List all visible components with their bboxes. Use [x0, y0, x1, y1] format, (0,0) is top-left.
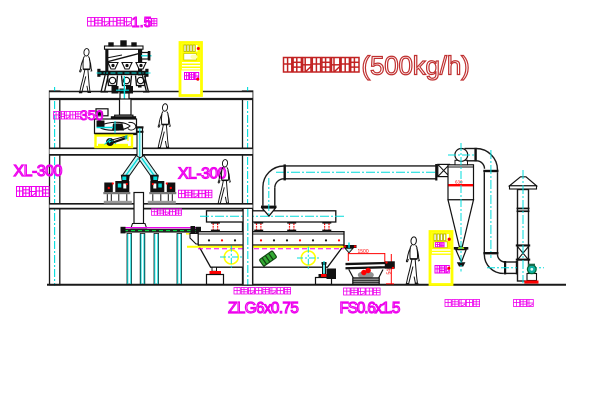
svg-text:ZLG6x0.75: ZLG6x0.75 [228, 300, 298, 317]
svg-text:XL-300: XL-300 [14, 163, 63, 180]
svg-text:350: 350 [80, 107, 104, 123]
svg-text:630: 630 [455, 180, 463, 185]
svg-text:(500kg/h): (500kg/h) [362, 51, 470, 81]
svg-text:1500: 1500 [358, 249, 369, 255]
svg-text:FS0.6x1.5: FS0.6x1.5 [340, 300, 400, 317]
